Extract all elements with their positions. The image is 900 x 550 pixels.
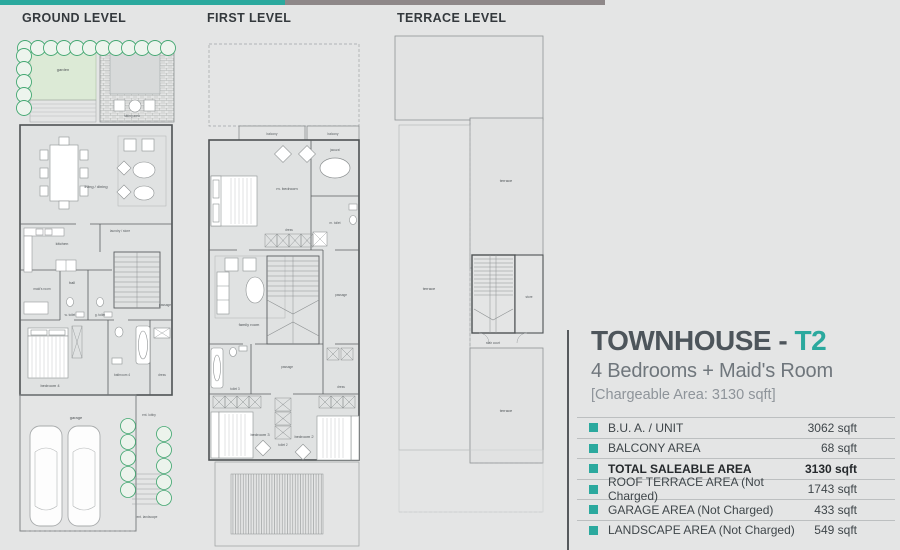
room-label-lobby: ent. lobby [142,413,156,417]
room-label-maid: maid's room [33,287,51,291]
room-label-laundry: laundry / store [110,229,130,233]
area-row-value: 433 sqft [814,503,895,517]
area-row-value: 68 sqft [821,441,895,455]
brochure-page: GROUND LEVEL FIRST LEVEL TERRACE LEVEL [0,0,900,550]
room-label-bathroom4: bathroom 4 [114,373,130,377]
room-label-mtoilet: m. toilet [329,221,340,225]
room-label-hall: hall [69,280,75,285]
unit-title-code: T2 [794,325,826,356]
room-label-dress: dress [158,373,166,377]
area-row-label: TOTAL SALEABLE AREA [608,462,805,476]
room-label-balcony2: balcony [328,132,339,136]
room-label-toilet2: toilet 2 [278,443,288,447]
room-label-staircourt: stair court [486,341,500,345]
terrace-level-plan: terrace terrace store stair court terrac… [391,30,549,545]
room-label-landscape: ent. landscape [137,515,158,519]
chargeable-area: [Chargeable Area: 3130 sqft] [591,387,891,403]
ground-level-heading: GROUND LEVEL [22,11,126,25]
area-row-value: 1743 sqft [808,482,895,496]
room-label-bedroom2: bedroom 2 [294,434,314,439]
area-table-row: GARAGE AREA (Not Charged)433 sqft [577,499,895,520]
room-label-sitting: sitting area [124,114,140,118]
bullet-square-icon [589,485,598,494]
room-label-bedroom3: bedroom 3 [250,432,270,437]
room-label-jacuzzi: jacuzzi [329,148,340,152]
unit-title-text: TOWNHOUSE - [591,325,794,356]
area-table-row: B.U. A. / UNIT3062 sqft [577,417,895,438]
room-label-terrace2: terrace [423,286,436,291]
area-table: B.U. A. / UNIT3062 sqftBALCONY AREA68 sq… [577,417,895,540]
room-label-passage1: passage [335,293,347,297]
room-label-store: store [525,295,532,299]
room-label-dress1: dress [285,228,293,232]
unit-subtitle: 4 Bedrooms + Maid's Room [591,360,891,383]
room-label-gtoilet: g. toilet [95,313,105,317]
info-divider-line [567,330,569,550]
area-row-label: B.U. A. / UNIT [608,421,808,435]
unit-title: TOWNHOUSE - T2 [591,326,891,357]
area-table-row: LANDSCAPE AREA (Not Charged)549 sqft [577,520,895,541]
unit-info: TOWNHOUSE - T2 4 Bedrooms + Maid's Room … [591,326,891,403]
top-accent-bar-gray [285,0,605,5]
area-row-label: ROOF TERRACE AREA (Not Charged) [608,475,808,503]
ground-level-plan: garden sitting area living / dining kitc… [16,38,178,548]
room-label-kitchen: kitchen [56,241,69,246]
terrace-level-heading: TERRACE LEVEL [397,11,506,25]
room-label-bedroom4: bedroom 4 [40,383,60,388]
bullet-square-icon [589,444,598,453]
room-label-garage: garage [70,415,83,420]
room-label-living: living / dining [84,184,107,189]
area-row-label: LANDSCAPE AREA (Not Charged) [608,523,814,537]
room-label-balcony1: balcony [267,132,278,136]
room-label-wtoilet: w. toilet [65,313,76,317]
room-label-terrace1: terrace [500,178,513,183]
bullet-square-icon [589,423,598,432]
room-label-toilet3: toilet 3 [230,387,240,391]
area-row-label: BALCONY AREA [608,441,821,455]
area-row-value: 3062 sqft [808,421,895,435]
bullet-square-icon [589,526,598,535]
area-row-value: 3130 sqft [805,462,895,476]
room-label-passage: passage [159,303,171,307]
room-label-family: family room [239,322,260,327]
bullet-square-icon [589,505,598,514]
room-label-terrace3: terrace [500,408,513,413]
room-label-dress2: dress [337,385,345,389]
room-label-passage2: passage [281,365,293,369]
bullet-square-icon [589,464,598,473]
area-row-value: 549 sqft [814,523,895,537]
area-table-row: BALCONY AREA68 sqft [577,438,895,459]
area-table-row: ROOF TERRACE AREA (Not Charged)1743 sqft [577,479,895,500]
first-level-heading: FIRST LEVEL [207,11,291,25]
first-level-plan: balcony balcony jacuzzi m. bedroom m. to… [203,38,365,548]
entrance-trees [121,419,172,506]
room-label-garden: garden [57,67,69,72]
room-label-mbedroom: m. bedroom [276,186,298,191]
top-accent-bar-teal [0,0,285,5]
area-row-label: GARAGE AREA (Not Charged) [608,503,814,517]
